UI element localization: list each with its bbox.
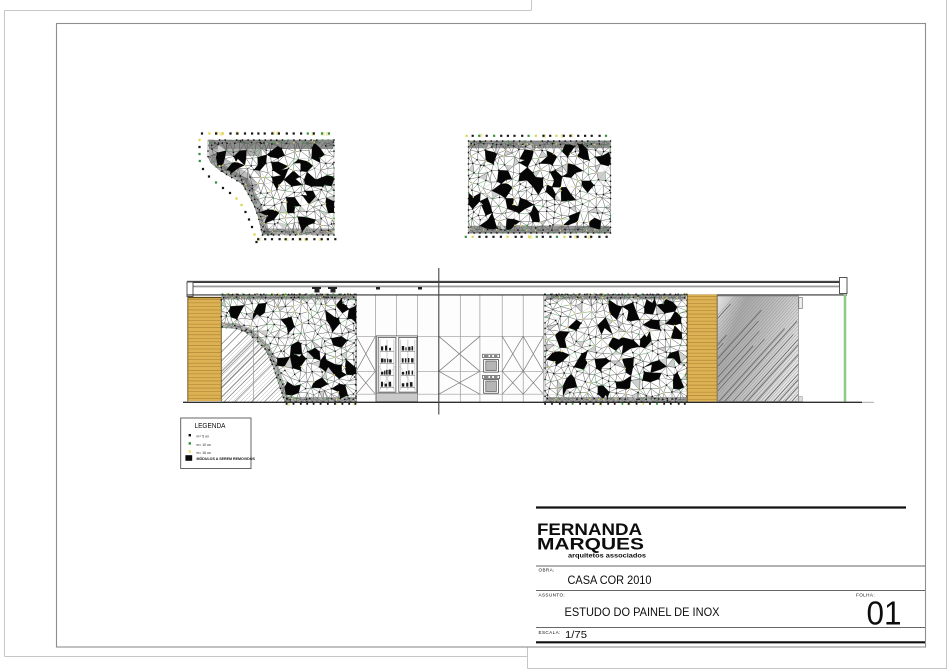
- svg-text:m= 16 un: m= 16 un: [197, 451, 211, 455]
- svg-text:arquitetos associados: arquitetos associados: [568, 552, 646, 559]
- svg-text:MARQUES: MARQUES: [537, 534, 644, 553]
- svg-text:01: 01: [867, 596, 902, 633]
- svg-text:1/75: 1/75: [565, 629, 587, 641]
- svg-text:CASA COR 2010: CASA COR 2010: [568, 575, 652, 587]
- svg-text:ESTUDO DO PAINEL DE INOX: ESTUDO DO PAINEL DE INOX: [565, 607, 720, 619]
- svg-text:MÓDULOS A SEREM REMOVIDOS: MÓDULOS A SEREM REMOVIDOS: [197, 456, 256, 461]
- svg-text:m= 5 un: m= 5 un: [197, 435, 209, 439]
- svg-text:LEGENDA: LEGENDA: [195, 421, 227, 430]
- svg-text:m= 10 un: m= 10 un: [197, 443, 211, 447]
- svg-text:ESCALA:: ESCALA:: [539, 630, 561, 635]
- svg-text:OBRA:: OBRA:: [539, 568, 555, 573]
- svg-text:ASSUNTO:: ASSUNTO:: [539, 593, 566, 598]
